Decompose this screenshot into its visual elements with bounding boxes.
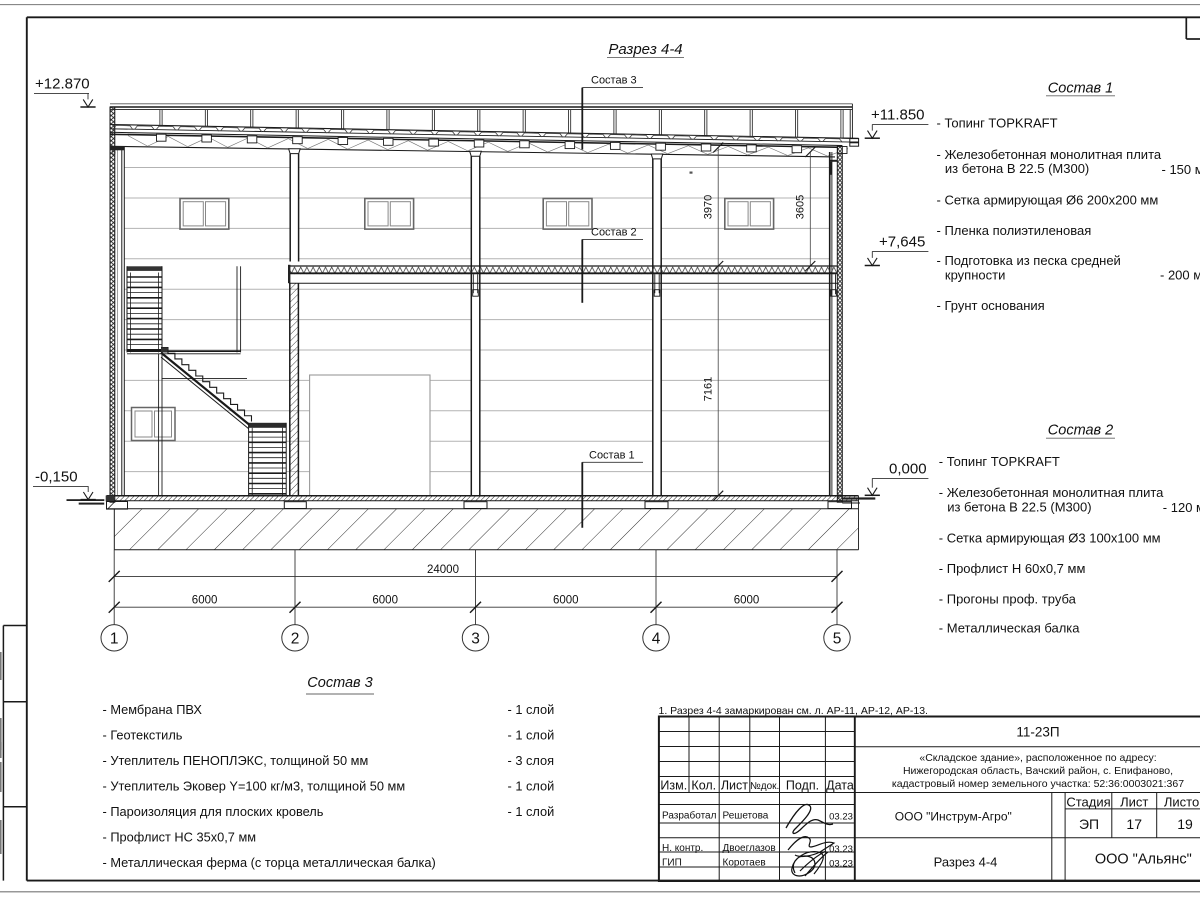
svg-text:- 200 мм: - 200 мм bbox=[1160, 268, 1200, 283]
svg-text:- Металлическая балка: - Металлическая балка bbox=[939, 621, 1080, 636]
svg-text:Подп.: Подп. bbox=[786, 779, 819, 793]
svg-text:Состав 3: Состав 3 bbox=[591, 74, 637, 86]
svg-text:3: 3 bbox=[471, 630, 480, 647]
svg-text:Решетова: Решетова bbox=[723, 811, 769, 822]
svg-text:5: 5 bbox=[833, 630, 842, 647]
svg-text:- 3 слоя: - 3 слоя bbox=[508, 753, 555, 768]
svg-text:Листов: Листов bbox=[1164, 795, 1200, 810]
svg-text:1: 1 bbox=[110, 630, 119, 647]
svg-text:- Топинг TOPKRAFT: - Топинг TOPKRAFT bbox=[939, 454, 1060, 469]
svg-text:- Металлическая ферма (с торца: - Металлическая ферма (с торца металличе… bbox=[103, 855, 436, 870]
svg-text:3605: 3605 bbox=[795, 195, 807, 219]
svg-text:03.23: 03.23 bbox=[829, 844, 853, 855]
svg-text:«Складское здание», расположен: «Складское здание», расположенное по адр… bbox=[919, 752, 1156, 764]
svg-text:Разработал: Разработал bbox=[662, 810, 717, 822]
svg-text:крупности: крупности bbox=[945, 268, 1005, 283]
svg-text:Состав 1: Состав 1 bbox=[1048, 80, 1113, 96]
svg-text:Разрез 4-4: Разрез 4-4 bbox=[608, 41, 682, 58]
svg-text:- 1 слой: - 1 слой bbox=[508, 727, 555, 742]
svg-text:Нижегородская область, Вачский: Нижегородская область, Вачский район, с.… bbox=[903, 765, 1173, 777]
svg-text:Состав 1: Состав 1 bbox=[589, 449, 635, 461]
svg-text:- 1 слой: - 1 слой bbox=[508, 804, 555, 819]
svg-text:-0,150: -0,150 bbox=[35, 469, 78, 486]
svg-text:7161: 7161 bbox=[703, 377, 715, 401]
svg-text:1. Разрез 4-4 замаркирован см.: 1. Разрез 4-4 замаркирован см. л. АР-11,… bbox=[659, 705, 928, 717]
svg-text:- Утеплитель Эковер Y=100 кг/м: - Утеплитель Эковер Y=100 кг/м3, толщино… bbox=[103, 778, 406, 793]
svg-text:11-23П: 11-23П bbox=[1016, 725, 1059, 740]
svg-text:- Подготовка из песка средней: - Подготовка из песка средней bbox=[937, 253, 1121, 268]
svg-text:Лист: Лист bbox=[721, 779, 748, 793]
svg-text:Изм.: Изм. bbox=[660, 779, 687, 793]
svg-text:- 1 слой: - 1 слой bbox=[508, 778, 555, 793]
svg-text:03.23: 03.23 bbox=[829, 859, 853, 870]
svg-text:- Утеплитель ПЕНОПЛЭКС, толщин: - Утеплитель ПЕНОПЛЭКС, толщиной 50 мм bbox=[103, 753, 369, 768]
svg-text:- Железобетонная монолитная п: - Железобетонная монолитная плита bbox=[937, 147, 1162, 162]
svg-text:ООО "Инструм-Агро": ООО "Инструм-Агро" bbox=[895, 810, 1012, 824]
svg-text:17: 17 bbox=[1126, 816, 1142, 832]
svg-text:0,000: 0,000 bbox=[889, 461, 927, 478]
svg-text:кадастровый номер земельного у: кадастровый номер земельного участка: 52… bbox=[892, 778, 1184, 790]
svg-text:24000: 24000 bbox=[427, 564, 459, 576]
svg-text:Лист: Лист bbox=[1120, 795, 1148, 810]
svg-text:3970: 3970 bbox=[703, 195, 715, 219]
svg-text:Стадия: Стадия bbox=[1066, 795, 1110, 810]
svg-text:- Сетка армирующая Ø3 100х100: - Сетка армирующая Ø3 100х100 мм bbox=[939, 531, 1161, 546]
svg-text:Разрез 4-4: Разрез 4-4 bbox=[934, 855, 998, 870]
svg-text:Состав 3: Состав 3 bbox=[307, 675, 372, 691]
svg-text:- Мембрана ПВХ: - Мембрана ПВХ bbox=[103, 702, 203, 717]
svg-text:6000: 6000 bbox=[372, 595, 398, 607]
svg-text:ЭП: ЭП bbox=[1079, 816, 1099, 832]
svg-text:+7,645: +7,645 bbox=[879, 234, 925, 251]
svg-text:- Прогоны проф. труба: - Прогоны проф. труба bbox=[939, 591, 1077, 606]
svg-text:Коротаев: Коротаев bbox=[723, 858, 766, 869]
svg-text:+12.870: +12.870 bbox=[35, 76, 90, 93]
svg-text:03.23: 03.23 bbox=[829, 812, 853, 823]
svg-text:19: 19 bbox=[1177, 816, 1193, 832]
svg-text:Н. контр.: Н. контр. bbox=[662, 843, 703, 854]
svg-text:ГИП: ГИП bbox=[662, 858, 682, 869]
svg-text:+11.850: +11.850 bbox=[871, 107, 925, 124]
svg-text:№док.: №док. bbox=[750, 781, 779, 792]
svg-text:6000: 6000 bbox=[553, 595, 579, 607]
svg-text:- Сетка армирующая Ø6 200х200: - Сетка армирующая Ø6 200х200 мм bbox=[937, 192, 1159, 207]
svg-text:6000: 6000 bbox=[192, 595, 218, 607]
svg-text:- 120 мм: - 120 мм bbox=[1163, 500, 1200, 515]
svg-text:2: 2 bbox=[291, 630, 300, 647]
svg-text:Состав 2: Состав 2 bbox=[591, 227, 637, 239]
svg-text:6000: 6000 bbox=[734, 595, 760, 607]
svg-text:Состав 2: Состав 2 bbox=[1048, 423, 1113, 439]
svg-text:из бетона В 22.5 (М300): из бетона В 22.5 (М300) bbox=[945, 161, 1089, 176]
svg-text:- Профлист Н 60х0,7 мм: - Профлист Н 60х0,7 мм bbox=[939, 561, 1086, 576]
svg-text:- Геотекстиль: - Геотекстиль bbox=[103, 727, 183, 742]
svg-text:Дата: Дата bbox=[826, 779, 854, 793]
svg-text:- Пленка полиэтиленовая: - Пленка полиэтиленовая bbox=[937, 223, 1092, 238]
svg-text:Кол.: Кол. bbox=[691, 779, 716, 793]
svg-text:- Профлист НС 35х0,7 мм: - Профлист НС 35х0,7 мм bbox=[103, 829, 257, 844]
svg-text:- Железобетонная монолитная п: - Железобетонная монолитная плита bbox=[939, 485, 1164, 500]
svg-text:4: 4 bbox=[652, 630, 661, 647]
svg-text:- 1 слой: - 1 слой bbox=[508, 702, 555, 717]
svg-text:ООО "Альянс": ООО "Альянс" bbox=[1095, 852, 1192, 868]
svg-text:- 150 мм: - 150 мм bbox=[1162, 162, 1200, 177]
svg-text:- Грунт основания: - Грунт основания bbox=[937, 298, 1045, 313]
svg-text:- Пароизоляция для плоских кро: - Пароизоляция для плоских кровель bbox=[103, 804, 324, 819]
svg-text:- Топинг TOPKRAFT: - Топинг TOPKRAFT bbox=[937, 115, 1058, 130]
svg-text:Двоеглазов: Двоеглазов bbox=[723, 843, 776, 854]
svg-text:из бетона В 22.5 (М300): из бетона В 22.5 (М300) bbox=[947, 499, 1091, 514]
